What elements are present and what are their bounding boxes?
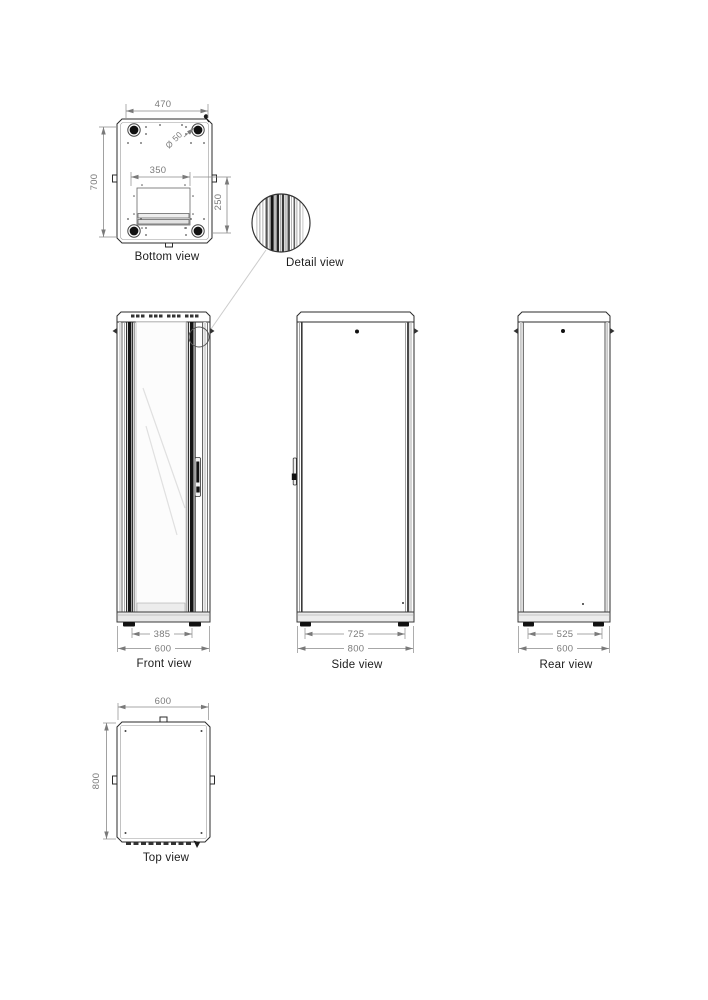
top-inner-wall [121, 726, 207, 839]
cabinet-drawing: 470 700 350 250 Ø 50 Bottom view [0, 0, 708, 1000]
rear-vent-dot [582, 603, 584, 605]
side-view: 725 800 Side view [292, 312, 419, 671]
side-vent-dot [402, 602, 404, 604]
side-foot-left [300, 622, 311, 627]
door-bottom-rail [137, 603, 185, 612]
rear-foot-left [523, 622, 534, 627]
side-top-tab [414, 328, 419, 334]
side-body [297, 322, 414, 612]
side-top-cap [297, 312, 414, 322]
detail-view-label: Detail view [286, 257, 344, 269]
cutout-depth-dim: 250 [213, 194, 224, 211]
side-lock-dot [355, 330, 359, 334]
rear-view-label: Rear view [540, 659, 593, 671]
rear-body [518, 322, 610, 612]
top-width-dim: 600 [155, 696, 172, 707]
front-view: 385 600 Front view [113, 312, 215, 670]
top-vent-slots [131, 315, 199, 318]
hinge-tab-right [212, 175, 217, 182]
side-foot-right [398, 622, 409, 627]
top-vent-slots [126, 843, 191, 846]
rear-lock-dot [561, 329, 565, 333]
top-outline [117, 722, 210, 842]
top-corner-dots [125, 730, 203, 834]
top-view: 600 800 Top view [91, 696, 215, 864]
cutout-width-dim: 350 [150, 165, 167, 176]
bottom-view-label: Bottom view [135, 251, 200, 263]
rear-overall-width-dim: 600 [557, 644, 574, 655]
top-tab-right [210, 328, 215, 334]
rear-foot-right [593, 622, 604, 627]
bottom-tab [166, 243, 173, 247]
front-foot-left [123, 622, 135, 627]
front-inner-width-dim: 385 [154, 629, 171, 640]
rear-inner-width-dim: 525 [557, 629, 574, 640]
bottom-depth-dim: 700 [89, 174, 100, 191]
side-inner-depth-dim: 725 [348, 629, 365, 640]
rear-right-edge [605, 322, 609, 612]
rear-top-tab-left [514, 328, 519, 334]
gland-strips [138, 214, 189, 225]
side-plinth [297, 612, 414, 622]
rear-plinth [518, 612, 610, 622]
side-handle [292, 458, 297, 485]
front-view-label: Front view [136, 658, 192, 670]
technical-drawing-sheet: 470 700 350 250 Ø 50 Bottom view [0, 0, 708, 1000]
side-view-label: Side view [331, 659, 383, 671]
front-plinth [117, 612, 210, 622]
front-overall-width-dim: 600 [155, 644, 172, 655]
detail-leader-line [211, 250, 266, 329]
top-latch-right [210, 776, 215, 784]
top-view-label: Top view [143, 852, 190, 864]
rear-view: 525 600 Rear view [514, 312, 615, 671]
detail-view: Detail view [211, 193, 344, 329]
top-tab-left [113, 328, 118, 334]
top-depth-dim: 800 [91, 773, 102, 790]
door-handle [195, 458, 201, 497]
glass-door [136, 322, 186, 612]
rear-top-cap [518, 312, 610, 322]
bottom-view: 470 700 350 250 Ø 50 Bottom view [89, 99, 231, 263]
top-tab [160, 717, 167, 722]
top-latch-left [113, 776, 118, 784]
foot-diameter-dim: Ø 50 [163, 129, 184, 150]
side-overall-depth-dim: 800 [348, 644, 365, 655]
rear-top-tab-right [610, 328, 615, 334]
front-foot-right [189, 622, 201, 627]
hinge-tab-left [113, 175, 118, 182]
bottom-width-dim: 470 [155, 99, 172, 110]
